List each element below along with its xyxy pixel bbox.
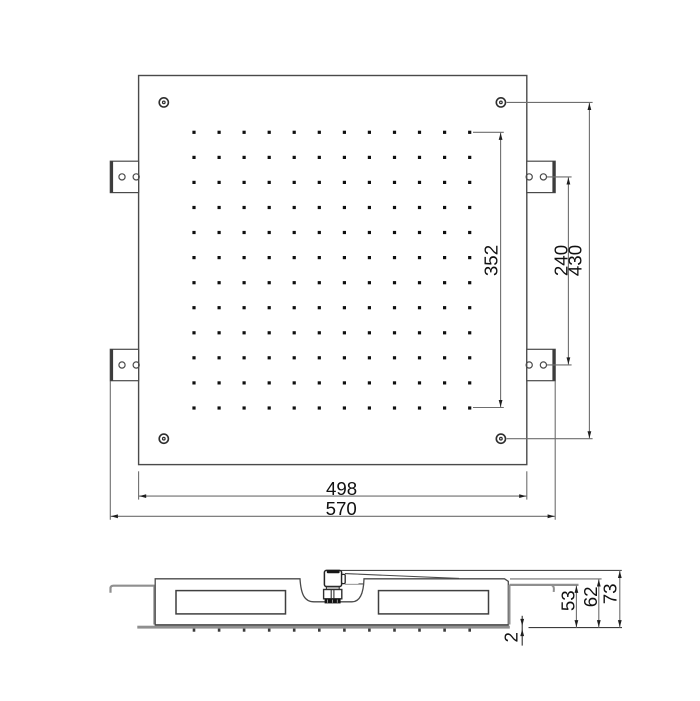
svg-text:73: 73	[600, 584, 621, 605]
svg-text:62: 62	[580, 587, 601, 608]
svg-text:2: 2	[501, 632, 522, 642]
svg-text:53: 53	[558, 590, 579, 611]
svg-text:570: 570	[326, 498, 357, 519]
svg-text:498: 498	[326, 478, 357, 499]
svg-text:430: 430	[564, 245, 585, 276]
svg-text:352: 352	[481, 245, 502, 276]
